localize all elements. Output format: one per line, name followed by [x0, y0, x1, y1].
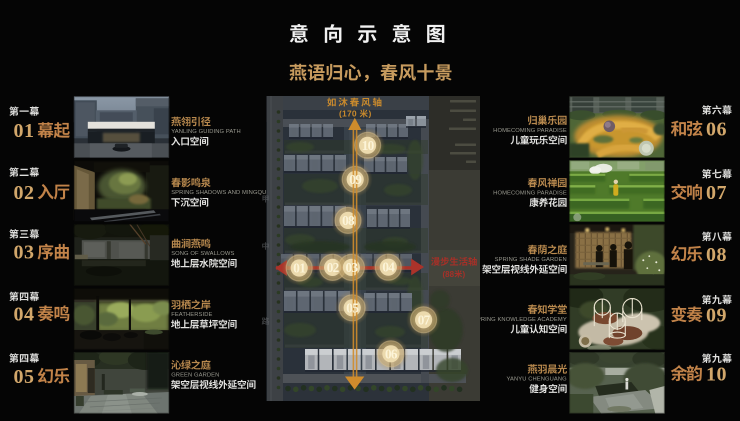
svg-text:HOMECOMING PARADISE: HOMECOMING PARADISE: [493, 128, 567, 134]
svg-text:): ): [463, 270, 466, 279]
svg-text:YANYU CHENGUANG: YANYU CHENGUANG: [506, 377, 567, 383]
svg-text:SPRING KNOWLEDGE ACADEMY: SPRING KNOWLEDGE ACADEMY: [473, 317, 567, 323]
svg-text:09: 09: [706, 304, 727, 326]
svg-text:02: 02: [14, 182, 35, 204]
svg-text:02: 02: [327, 260, 340, 275]
svg-text:01: 01: [14, 120, 35, 142]
svg-text:01: 01: [293, 261, 305, 276]
svg-text:03: 03: [14, 242, 35, 264]
svg-text:05: 05: [14, 366, 35, 388]
svg-text:10: 10: [362, 138, 375, 153]
svg-text:YANLING GUIDING PATH: YANLING GUIDING PATH: [171, 129, 241, 135]
svg-text:06: 06: [706, 119, 727, 141]
svg-text:(170: (170: [339, 109, 357, 119]
svg-text:08: 08: [342, 213, 355, 228]
svg-text:FEATHERSIDE: FEATHERSIDE: [171, 312, 212, 318]
svg-text:SPRING SHADE GARDEN: SPRING SHADE GARDEN: [495, 257, 567, 263]
svg-text:06: 06: [385, 346, 398, 361]
svg-text:HOMECOMING PARADISE: HOMECOMING PARADISE: [493, 190, 567, 196]
svg-text:08: 08: [706, 244, 727, 266]
svg-text:04: 04: [14, 303, 35, 325]
svg-text:07: 07: [418, 312, 431, 327]
svg-text:09: 09: [349, 172, 362, 187]
svg-text:05: 05: [346, 300, 359, 315]
svg-text:GREEN GARDEN: GREEN GARDEN: [171, 372, 219, 378]
svg-text:SPRING SHADOWS AND MINGQUAN: SPRING SHADOWS AND MINGQUAN: [171, 190, 275, 196]
svg-text:): ): [369, 109, 372, 119]
svg-text:04: 04: [382, 260, 395, 275]
svg-text:(88: (88: [443, 270, 455, 279]
svg-text:03: 03: [346, 260, 359, 275]
svg-text:07: 07: [706, 182, 727, 204]
svg-text:10: 10: [706, 363, 727, 385]
svg-text:SONG OF SWALLOWS: SONG OF SWALLOWS: [171, 251, 234, 257]
